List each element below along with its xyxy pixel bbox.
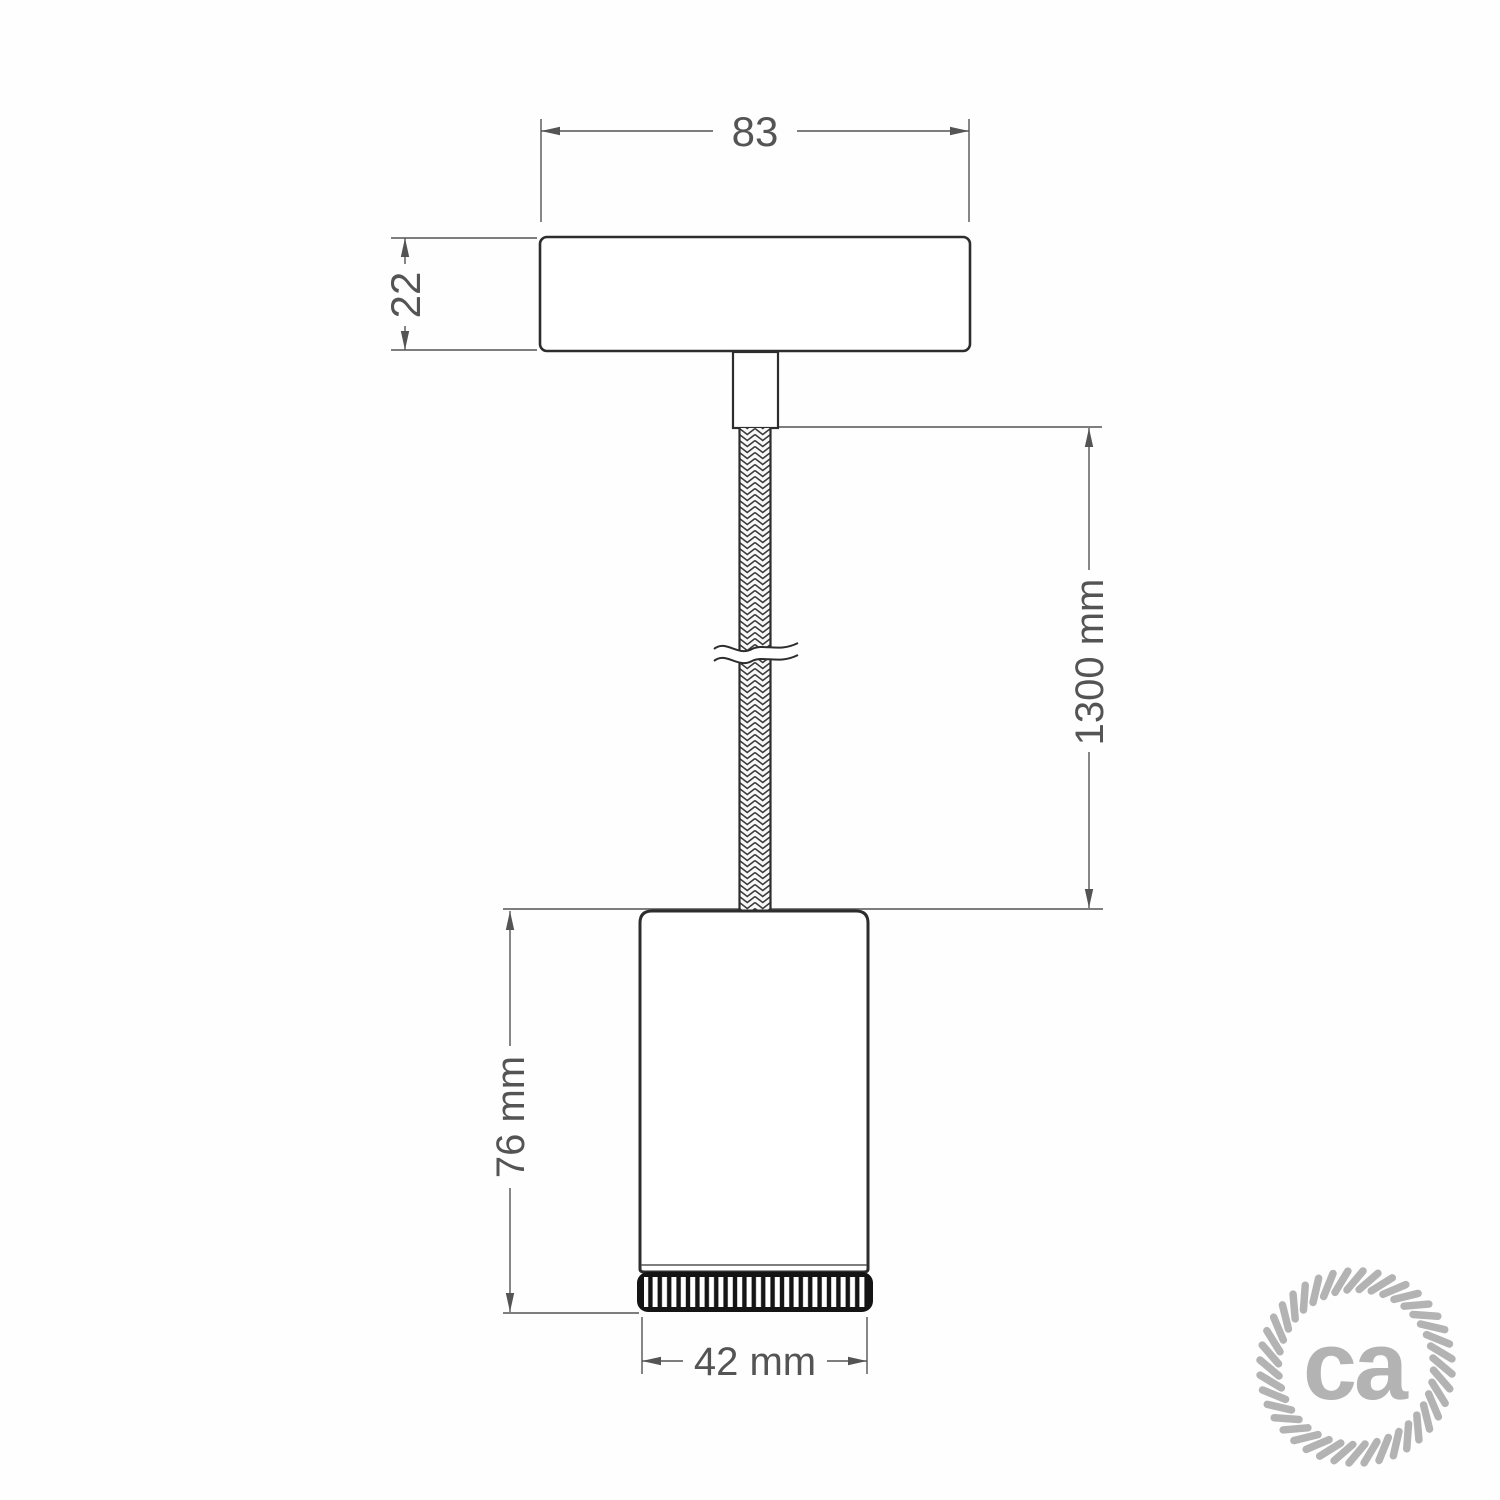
- dimension-spot-diameter: 42 mm: [642, 1340, 867, 1384]
- ceiling-canopy: [540, 237, 970, 351]
- brand-logo-text: ca: [1303, 1311, 1409, 1420]
- spot-cylinder-body: [640, 911, 868, 1272]
- dim-label-cable-length: 1300 mm: [1068, 579, 1112, 746]
- arrowhead-76-bottom: [506, 1293, 514, 1312]
- dimension-canopy-height: 22: [382, 238, 429, 350]
- arrowhead-1300-top: [1085, 428, 1093, 447]
- dimension-canopy-width: 83: [541, 108, 969, 155]
- arrowhead-1300-bottom: [1085, 889, 1093, 908]
- dim-label-spot-height: 76 mm: [489, 1056, 533, 1178]
- arrowhead-22-top: [401, 238, 409, 257]
- arrowhead-83-right: [950, 127, 969, 135]
- dimension-cable-length: 1300 mm: [1068, 428, 1112, 908]
- dim-label-canopy-height: 22: [382, 272, 429, 319]
- ring-knurling: [644, 1277, 866, 1307]
- dim-label-canopy-width: 83: [732, 108, 779, 155]
- arrowhead-76-top: [506, 911, 514, 930]
- dimension-spot-height: 76 mm: [489, 911, 533, 1312]
- cable-braid-fill: [740, 428, 771, 911]
- arrowhead-22-bottom: [401, 331, 409, 350]
- dimension-drawing-canvas: 83 22 1300 mm 76 mm 42 mm ca: [0, 0, 1500, 1500]
- dim-label-spot-diameter: 42 mm: [694, 1340, 816, 1384]
- cord-grip-stem: [733, 352, 778, 428]
- braided-cable: [740, 428, 771, 911]
- pendant-lamp-technical-drawing: 83 22 1300 mm 76 mm 42 mm ca: [0, 0, 1500, 1500]
- knurled-trim-ring: [637, 1272, 873, 1312]
- brand-logo: ca: [1260, 1271, 1452, 1463]
- arrowhead-83-left: [541, 127, 560, 135]
- arrowhead-42-left: [642, 1357, 661, 1365]
- arrowhead-42-right: [848, 1357, 867, 1365]
